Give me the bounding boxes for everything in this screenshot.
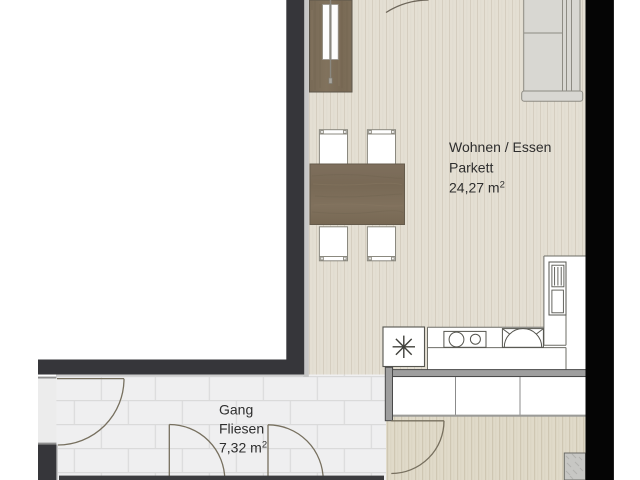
- svg-text:24,27 m2: 24,27 m2: [449, 179, 505, 195]
- svg-text:7,32 m2: 7,32 m2: [219, 439, 267, 455]
- svg-text:Wohnen / Essen: Wohnen / Essen: [449, 139, 551, 155]
- svg-text:Parkett: Parkett: [449, 160, 493, 176]
- svg-text:Gang: Gang: [219, 401, 253, 417]
- svg-text:Fliesen: Fliesen: [219, 420, 264, 436]
